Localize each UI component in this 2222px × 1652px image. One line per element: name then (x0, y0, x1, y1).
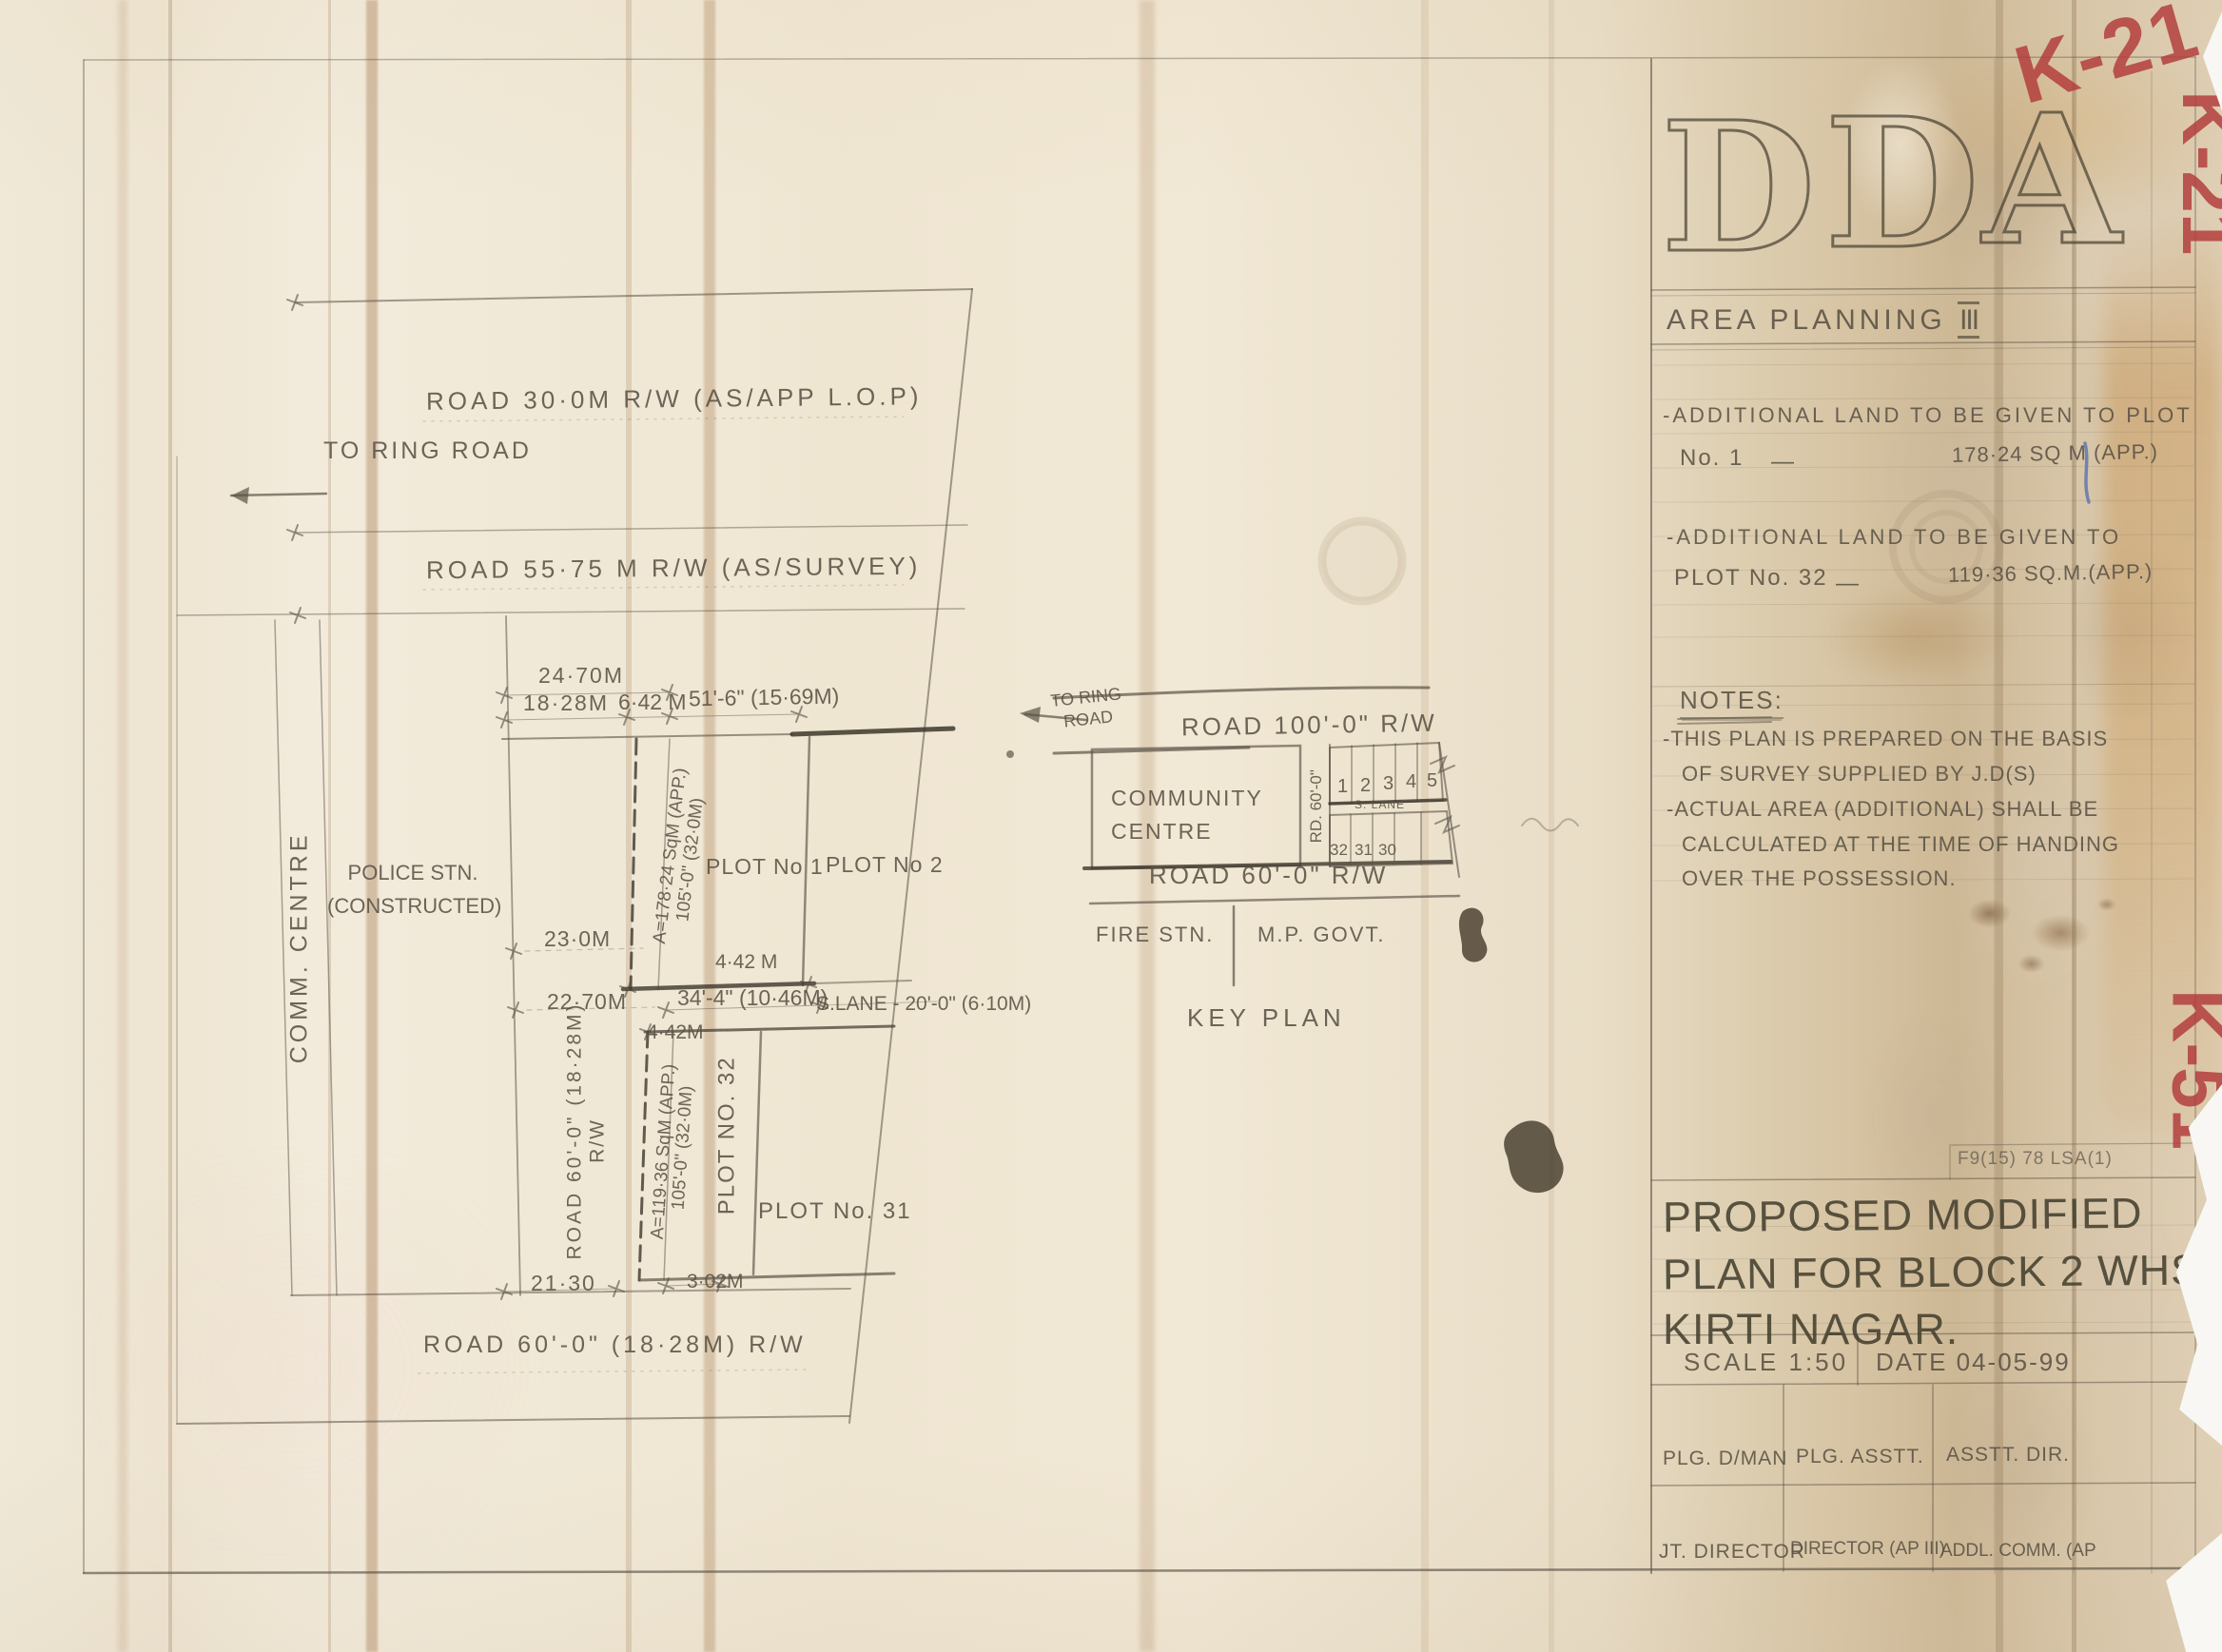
kp-rd60-vertical-label: RD. 60'-0" (1307, 753, 1326, 860)
police-station-label: POLICE STN. (CONSTRUCTED) (327, 856, 498, 923)
faint-stamp (1322, 521, 1402, 601)
slane-main-label: S.LANE - 20'-0" (6·10M) (816, 993, 1031, 1016)
dda-letter-d1: D (1661, 99, 1816, 278)
sign-plg-asstt: PLG. ASSTT. (1796, 1446, 1924, 1468)
road60-vertical-label: ROAD 60'-0" (18·28M) R/W (564, 1022, 616, 1260)
kp-title: KEY PLAN (1187, 1004, 1346, 1033)
police-line2: (CONSTRUCTED) (327, 889, 498, 923)
alloc1-line1: -ADDITIONAL LAND TO BE GIVEN TO PLOT (1663, 403, 2193, 427)
kp-plot-num-1: 1 (1337, 776, 1348, 798)
dim-2470: 24·70M (538, 663, 624, 688)
alloc1-dash: — (1771, 449, 1794, 476)
dim-344: 34'-4" (10·46M) (677, 985, 828, 1010)
sign-addl-comm: ADDL. COMM. (AP (1940, 1541, 2096, 1562)
road60-bottom-label: ROAD 60'-0" (18·28M) R/W (423, 1331, 807, 1359)
notes-heading: NOTES: (1680, 687, 1783, 719)
ink-dot (1006, 750, 1014, 758)
note-line-4: CALCULATED AT THE TIME OF HANDING (1682, 832, 2119, 856)
comm-centre-label: COMM. CENTRE (286, 790, 314, 1104)
plot32-label: PLOT NO. 32 (714, 1028, 741, 1242)
alloc1-value: 178·24 SQ M (APP.) (1952, 439, 2158, 467)
kp-slane-label: S. LANE (1355, 799, 1405, 812)
note-line-1: -THIS PLAN IS PREPARED ON THE BASIS (1663, 727, 2108, 750)
kp-plot-num-5: 5 (1427, 770, 1437, 792)
note-line-3: -ACTUAL AREA (ADDITIONAL) SHALL BE (1666, 797, 2098, 821)
road60-vertical-line2: R/W (587, 1022, 610, 1260)
dim-642: 6·42 M (618, 690, 687, 714)
road-30m-label: ROAD 30·0M R/W (AS/APP L.O.P) (426, 382, 923, 416)
dim-230: 23·0M (544, 926, 611, 951)
kp-road60-label: ROAD 60'-0" R/W (1149, 862, 1388, 890)
red-mark-k21-side: K-21 (2165, 90, 2222, 471)
note-line-5: OVER THE POSSESSION. (1682, 866, 1957, 890)
plot31-label: PLOT No. 31 (758, 1198, 912, 1225)
dim-302: 3·02M (687, 1271, 744, 1293)
alloc2-value: 119·36 SQ.M.(APP.) (1948, 559, 2154, 587)
drawing-sheet: ROAD 30·0M R/W (AS/APP L.O.P) TO RING RO… (0, 0, 2222, 1652)
alloc2-dash: — (1836, 571, 1859, 597)
kp-plot-num-31: 31 (1355, 841, 1373, 860)
date-label: DATE 04-05-99 (1876, 1349, 2071, 1377)
plot2-label: PLOT No 2 (826, 852, 944, 877)
alloc2-line1: -ADDITIONAL LAND TO BE GIVEN TO (1666, 525, 2121, 549)
plot1-label: PLOT No 1 (706, 854, 824, 879)
kp-fire-stn-label: FIRE STN. (1096, 923, 1214, 946)
sign-jt-director: JT. DIRECTOR (1659, 1541, 1805, 1564)
dda-letter-d2: D (1824, 95, 1979, 274)
dept-name: AREA PLANNING (1666, 304, 1946, 336)
pencil-scribble (1522, 819, 1578, 831)
kp-plot-num-30: 30 (1378, 841, 1396, 860)
dept-label: AREA PLANNING III (1666, 304, 1979, 338)
dept-number: III (1958, 301, 1979, 339)
dda-letter-a: A (1982, 91, 2121, 270)
dim-2270: 22·70M (547, 989, 627, 1014)
sheet-title-line1: PROPOSED MODIFIED (1663, 1189, 2143, 1242)
dim-442a: 4·42 M (715, 951, 777, 974)
arrow-head (231, 487, 249, 504)
note-line-2: OF SURVEY SUPPLIED BY J.D(S) (1682, 762, 2037, 786)
dim-516: 51'-6" (15·69M) (689, 684, 840, 711)
sign-asstt-dir: ASSTT. DIR. (1946, 1444, 2070, 1467)
kp-plot-num-32: 32 (1330, 841, 1348, 860)
sign-director-apiii: DIRECTOR (AP III) (1790, 1539, 1945, 1560)
kp-mp-govt-label: M.P. GOVT. (1257, 923, 1386, 946)
dim-1828: 18·28M (523, 690, 609, 715)
sheet-title-line3: KIRTI NAGAR. (1663, 1305, 1959, 1354)
road60-vertical-line1: ROAD 60'-0" (18·28M) (564, 1022, 587, 1260)
alloc2-line2: PLOT No. 32 (1674, 565, 1828, 592)
scale-label: SCALE 1:50 (1684, 1349, 1848, 1377)
ink-blob (1459, 908, 1487, 962)
road-5575-label: ROAD 55·75 M R/W (AS/SURVEY) (426, 553, 922, 585)
sign-plg-dman: PLG. D/MAN (1663, 1448, 1787, 1470)
to-ring-road-label: TO RING ROAD (323, 437, 532, 465)
alloc1-line2: No. 1 (1680, 445, 1744, 472)
kp-plot-num-2: 2 (1360, 775, 1371, 797)
dim-2130: 21·30 (531, 1271, 596, 1295)
kp-road100-label: ROAD 100'-0" R/W (1181, 709, 1437, 743)
red-mark-k51-side: K-51 (2155, 989, 2222, 1312)
police-line1: POLICE STN. (327, 856, 498, 889)
kp-community-centre-label: COMMUNITY CENTRE (1111, 782, 1263, 847)
reference-number: F9(15) 78 LSA(1) (1958, 1149, 2113, 1170)
ink-blob (1504, 1120, 1563, 1193)
kp-plot-num-3: 3 (1383, 773, 1394, 795)
kp-community-line1: COMMUNITY (1111, 782, 1263, 815)
kp-plot-num-4: 4 (1406, 771, 1416, 793)
sheet-title-line2: PLAN FOR BLOCK 2 WHS (1663, 1246, 2201, 1300)
kp-community-line2: CENTRE (1111, 815, 1263, 848)
